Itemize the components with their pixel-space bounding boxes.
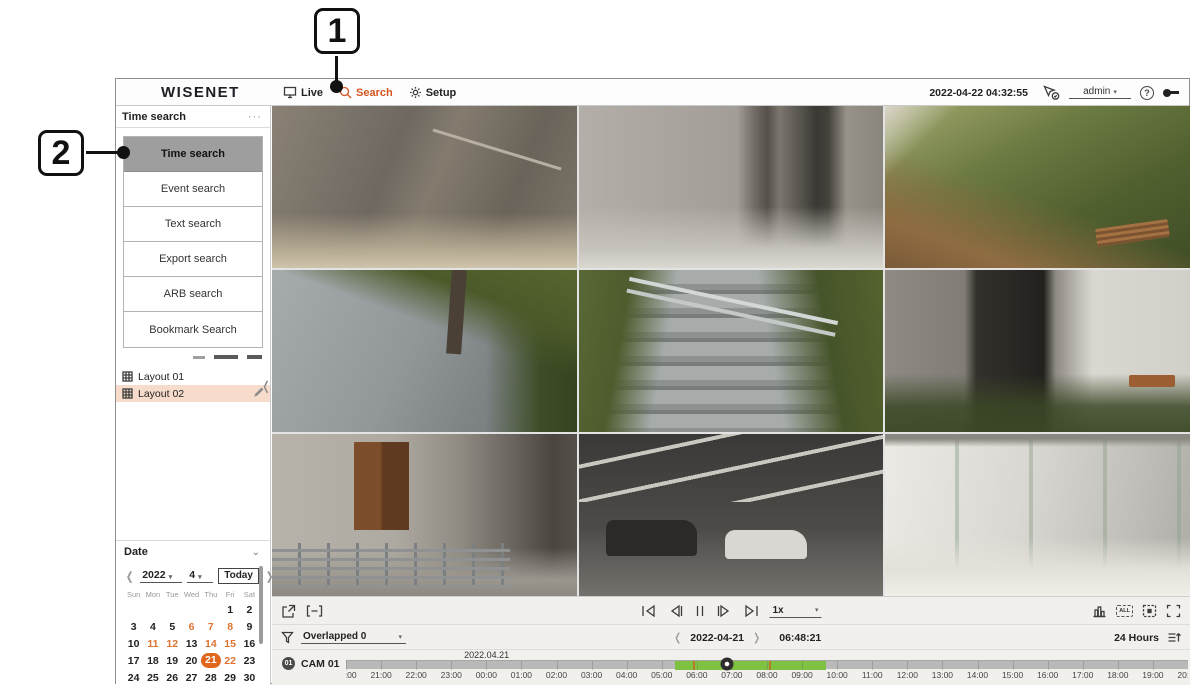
timeline-tick-label: 00:00: [476, 670, 497, 680]
toolbar-left-group: [281, 597, 323, 625]
grid-layout-icon: [122, 388, 133, 399]
timeline-tick-label: 08:00: [756, 670, 777, 680]
timeline-hour-notch: [697, 661, 698, 670]
camera-tile-4[interactable]: [272, 270, 577, 432]
user-name: admin: [1083, 86, 1110, 97]
timeline-hour-notch: [627, 661, 628, 670]
menu-setup-label: Setup: [426, 87, 457, 99]
panel-title: Time search: [122, 111, 186, 123]
weekday-label: Thu: [201, 590, 220, 599]
timeline-hour-notch: [802, 661, 803, 670]
histogram-icon[interactable]: [1092, 604, 1107, 618]
calendar-day-19[interactable]: 19: [163, 652, 182, 669]
callout-step-1: 1: [314, 8, 360, 54]
calendar-day-13[interactable]: 13: [182, 635, 201, 652]
timeline-tick-label: 19:00: [1142, 670, 1163, 680]
date-section-header[interactable]: Date ⌄: [116, 541, 270, 560]
wisenet-logo: WISENET: [161, 84, 240, 101]
filter-group: Overlapped 0 ▾: [281, 625, 406, 650]
calendar-day-16[interactable]: 16: [240, 635, 259, 652]
calendar-day-10[interactable]: 10: [124, 635, 143, 652]
timeline-date-label: 2022.04.21: [464, 650, 509, 660]
weekday-label: Wed: [182, 590, 201, 599]
search-type-event-search[interactable]: Event search: [124, 172, 262, 207]
grid-layout-icon: [122, 371, 133, 382]
calendar-day-28[interactable]: 28: [201, 669, 220, 686]
event-mark: [769, 661, 771, 670]
calendar-day-25[interactable]: 25: [143, 669, 162, 686]
search-type-time-search[interactable]: Time search: [124, 137, 262, 172]
menu-live-label: Live: [301, 87, 323, 99]
timeline-tick-label: 16:00: [1037, 670, 1058, 680]
logout-key-icon[interactable]: [1163, 89, 1179, 97]
channel-name: CAM 01: [301, 658, 340, 670]
calendar-day-18[interactable]: 18: [143, 652, 162, 669]
next-day-button[interactable]: ❭: [752, 631, 761, 644]
top-bar: WISENET Live Search Setup 2022-04-22 04:…: [116, 79, 1189, 106]
timeline-tick-label: 07:00: [721, 670, 742, 680]
timeline-hour-notch: [872, 661, 873, 670]
calendar-day-empty: [163, 601, 182, 618]
search-type-export-search[interactable]: Export search: [124, 242, 262, 277]
layout-list: Layout 01 Layout 02: [116, 368, 270, 402]
weekday-label: Tue: [163, 590, 182, 599]
range-group: 24 Hours: [1114, 625, 1181, 650]
callout-1-connector-line: [335, 56, 338, 82]
timeline-hour-notch: [451, 661, 452, 670]
calendar-day-empty: [124, 601, 143, 618]
timeline-tick-label: 04:00: [616, 670, 637, 680]
camera-tile-2[interactable]: [579, 106, 884, 268]
timeline-range-label: 24 Hours: [1114, 632, 1159, 644]
timeline-tick-label: 13:00: [932, 670, 953, 680]
menu-search-label: Search: [356, 87, 393, 99]
chevron-down-icon: ▾: [1113, 88, 1117, 96]
sidebar-scrollbar[interactable]: [259, 566, 263, 644]
today-button[interactable]: Today: [218, 568, 259, 584]
chevron-down-icon: ▾: [398, 633, 402, 641]
sidebar-panel-header: Time search ···: [116, 106, 270, 128]
timeline-tick-label: 06:00: [686, 670, 707, 680]
month-dropdown[interactable]: 4 ▾: [187, 569, 213, 583]
calendar-day-17[interactable]: 17: [124, 652, 143, 669]
timeline-hour-notch: [416, 661, 417, 670]
menu-search[interactable]: Search: [339, 86, 393, 99]
fit-screen-icon[interactable]: [1142, 604, 1157, 618]
search-type-list: Time searchEvent searchText searchExport…: [123, 136, 263, 348]
channel-cell[interactable]: 01 CAM 01: [282, 657, 340, 670]
page: WISENET Live Search Setup 2022-04-22 04:…: [0, 0, 1204, 689]
search-type-bookmark-search[interactable]: Bookmark Search: [124, 312, 262, 347]
timeline-hour-notch: [592, 661, 593, 670]
calendar-day-8[interactable]: 8: [220, 618, 239, 635]
weekday-label: Fri: [220, 590, 239, 599]
timeline-hour-notch: [1153, 661, 1154, 670]
speed-dropdown[interactable]: 1x ▾: [770, 605, 822, 618]
timeline-tick-label: 23:00: [441, 670, 462, 680]
date-section: Date ⌄ ❬ 2022 ▾ 4 ▾ Today ❭ SunMo: [116, 540, 270, 686]
export-icon[interactable]: [281, 604, 296, 619]
timeline-tick-label: 17:00: [1072, 670, 1093, 680]
calendar-day-27[interactable]: 27: [182, 669, 201, 686]
timeline-track-wrap: 2022.04.21 20:0021:0022:0023:0000:0001:0…: [346, 650, 1188, 686]
timeline-playhead[interactable]: [720, 658, 733, 671]
timeline-tick-label: 18:00: [1107, 670, 1128, 680]
chevron-down-icon: ▾: [198, 573, 202, 581]
overlapped-dropdown[interactable]: Overlapped 0 ▾: [301, 631, 406, 644]
timeline-hour-notch: [837, 661, 838, 670]
month-value: 4: [189, 569, 195, 581]
calendar-day-15[interactable]: 15: [220, 635, 239, 652]
chevron-down-icon: ⌄: [252, 547, 260, 558]
event-mark: [693, 661, 695, 670]
timeline-tick-label: 05:00: [651, 670, 672, 680]
step-backward-icon[interactable]: [668, 604, 685, 618]
menu-live[interactable]: Live: [283, 86, 323, 99]
timeline-zoom-icon[interactable]: [1167, 631, 1181, 644]
weekday-header-row: SunMonTueWedThuFriSat: [116, 590, 270, 599]
date-navigator: ❬ 2022-04-21 ❭ 06:48:21: [673, 625, 821, 650]
timeline-hour-notch: [907, 661, 908, 670]
current-date: 2022-04-21: [690, 632, 744, 644]
channel-badge: 01: [282, 657, 295, 670]
chevron-down-icon: ▾: [815, 606, 819, 614]
camera-tile-1[interactable]: [272, 106, 577, 268]
timeline-tick-label: 12:00: [897, 670, 918, 680]
timeline-hour-notch: [942, 661, 943, 670]
timeline-tick-label: 20:00: [1177, 670, 1188, 680]
calendar-day-empty: [143, 601, 162, 618]
layout-label: Layout 01: [138, 371, 184, 383]
calendar-day-3[interactable]: 3: [124, 618, 143, 635]
playback-toolbar: 1x ▾ ALL: [272, 596, 1190, 624]
chevron-down-icon: ▾: [169, 573, 173, 581]
calendar-day-24[interactable]: 24: [124, 669, 143, 686]
calendar-day-empty: [201, 601, 220, 618]
year-dropdown[interactable]: 2022 ▾: [140, 569, 182, 583]
timeline-hour-notch: [521, 661, 522, 670]
speed-value: 1x: [773, 605, 784, 616]
timeline-hour-notch: [381, 661, 382, 670]
camera-tile-6[interactable]: [885, 270, 1190, 432]
cursor-check-icon[interactable]: [1043, 85, 1060, 100]
timeline-hour-notch: [1048, 661, 1049, 670]
prev-day-button[interactable]: ❬: [673, 631, 682, 644]
timeline-tick-label: 22:00: [406, 670, 427, 680]
filter-funnel-icon[interactable]: [281, 631, 294, 644]
timeline-tick-label: 20:00: [346, 670, 357, 680]
timeline-hour-notch: [486, 661, 487, 670]
calendar-day-2[interactable]: 2: [240, 601, 259, 618]
calendar-day-1[interactable]: 1: [220, 601, 239, 618]
nvr-app-window: WISENET Live Search Setup 2022-04-22 04:…: [115, 78, 1190, 684]
camera-tile-8[interactable]: [579, 434, 884, 596]
pause-icon[interactable]: [695, 604, 706, 618]
search-type-arb-search[interactable]: ARB search: [124, 277, 262, 312]
user-dropdown[interactable]: admin ▾: [1069, 86, 1131, 99]
jump-to-end-icon[interactable]: [743, 604, 760, 618]
calendar-day-30[interactable]: 30: [240, 669, 259, 686]
camera-tile-9[interactable]: [885, 434, 1190, 596]
timeline-hour-notch: [557, 661, 558, 670]
system-datetime: 2022-04-22 04:32:55: [929, 87, 1028, 99]
layout-item-01[interactable]: Layout 01: [116, 368, 270, 385]
prev-month-button[interactable]: ❬: [124, 570, 135, 583]
menu-setup[interactable]: Setup: [409, 86, 457, 99]
monitor-icon: [283, 86, 297, 99]
overlapped-value: Overlapped 0: [303, 631, 366, 642]
select-all-channels-icon[interactable]: ALL: [1116, 605, 1133, 617]
timeline-tick-label: 11:00: [862, 670, 883, 680]
timeline-tick-label: 02:00: [546, 670, 567, 680]
search-filter-bar: Overlapped 0 ▾ ❬ 2022-04-21 ❭ 06:48:21 2…: [272, 624, 1190, 649]
timeline-hour-notch: [1083, 661, 1084, 670]
more-options-icon[interactable]: ···: [248, 114, 262, 120]
top-right-controls: 2022-04-22 04:32:55 admin ▾ ?: [929, 79, 1179, 106]
calendar-day-22[interactable]: 22: [220, 652, 239, 669]
calendar-day-5[interactable]: 5: [163, 618, 182, 635]
calendar-day-26[interactable]: 26: [163, 669, 182, 686]
gear-icon: [409, 86, 422, 99]
calendar-nav: ❬ 2022 ▾ 4 ▾ Today ❭: [116, 560, 270, 586]
calendar-day-14[interactable]: 14: [201, 635, 220, 652]
timeline-tick-label: 15:00: [1002, 670, 1023, 680]
timeline-tick-label: 01:00: [511, 670, 532, 680]
weekday-label: Mon: [143, 590, 162, 599]
timeline-tick-labels: 20:0021:0022:0023:0000:0001:0002:0003:00…: [346, 670, 1188, 683]
search-type-text-search[interactable]: Text search: [124, 207, 262, 242]
calendar-day-6[interactable]: 6: [182, 618, 201, 635]
timeline-row: 01 CAM 01 2022.04.21 20:0021:0022:0023:0…: [272, 649, 1190, 685]
fullscreen-icon[interactable]: [1166, 604, 1181, 618]
weekday-label: Sat: [240, 590, 259, 599]
help-icon[interactable]: ?: [1140, 86, 1154, 100]
calendar-day-11[interactable]: 11: [143, 635, 162, 652]
layout-item-02[interactable]: Layout 02: [116, 385, 270, 402]
calendar-day-9[interactable]: 9: [240, 618, 259, 635]
timeline-tick-label: 03:00: [581, 670, 602, 680]
timeline-track[interactable]: [346, 660, 1188, 669]
date-title: Date: [124, 546, 148, 558]
layout-label: Layout 02: [138, 388, 184, 400]
calendar-day-21[interactable]: 21: [201, 652, 220, 669]
timeline-tick-label: 21:00: [370, 670, 391, 680]
calendar-day-12[interactable]: 12: [163, 635, 182, 652]
camera-tile-5[interactable]: [579, 270, 884, 432]
weekday-label: Sun: [124, 590, 143, 599]
timeline-hour-notch: [1013, 661, 1014, 670]
timeline-hour-notch: [978, 661, 979, 670]
calendar-day-29[interactable]: 29: [220, 669, 239, 686]
camera-grid: [272, 106, 1190, 596]
sidebar: Time search ··· Time searchEvent searchT…: [116, 106, 271, 685]
sidebar-collapse-handle[interactable]: ❬: [261, 379, 271, 393]
calendar-day-23[interactable]: 23: [240, 652, 259, 669]
calendar-day-empty: [182, 601, 201, 618]
playback-controls: 1x ▾: [641, 597, 822, 625]
main-menu: Live Search Setup: [283, 79, 456, 106]
step-forward-icon[interactable]: [716, 604, 733, 618]
timeline-hour-notch: [662, 661, 663, 670]
calendar-day-20[interactable]: 20: [182, 652, 201, 669]
callout-step-2: 2: [38, 130, 84, 176]
toolbar-right-group: ALL: [1092, 597, 1181, 625]
timeline-tick-label: 10:00: [827, 670, 848, 680]
year-value: 2022: [142, 569, 165, 581]
clipped-toolbar-stub: [116, 355, 262, 359]
jump-to-start-icon[interactable]: [641, 604, 658, 618]
callout-2-dot: [117, 146, 130, 159]
section-export-icon[interactable]: [306, 604, 323, 618]
timeline-tick-label: 09:00: [791, 670, 812, 680]
calendar-day-7[interactable]: 7: [201, 618, 220, 635]
calendar-grid: 1234567891011121314151617181920212223242…: [116, 601, 270, 686]
timeline-hour-notch: [1118, 661, 1119, 670]
timeline-tick-label: 14:00: [967, 670, 988, 680]
callout-1-dot: [330, 80, 343, 93]
current-time: 06:48:21: [779, 632, 821, 644]
camera-tile-3[interactable]: [885, 106, 1190, 268]
camera-tile-7[interactable]: [272, 434, 577, 596]
timeline-hour-notch: [346, 661, 347, 670]
calendar-day-4[interactable]: 4: [143, 618, 162, 635]
